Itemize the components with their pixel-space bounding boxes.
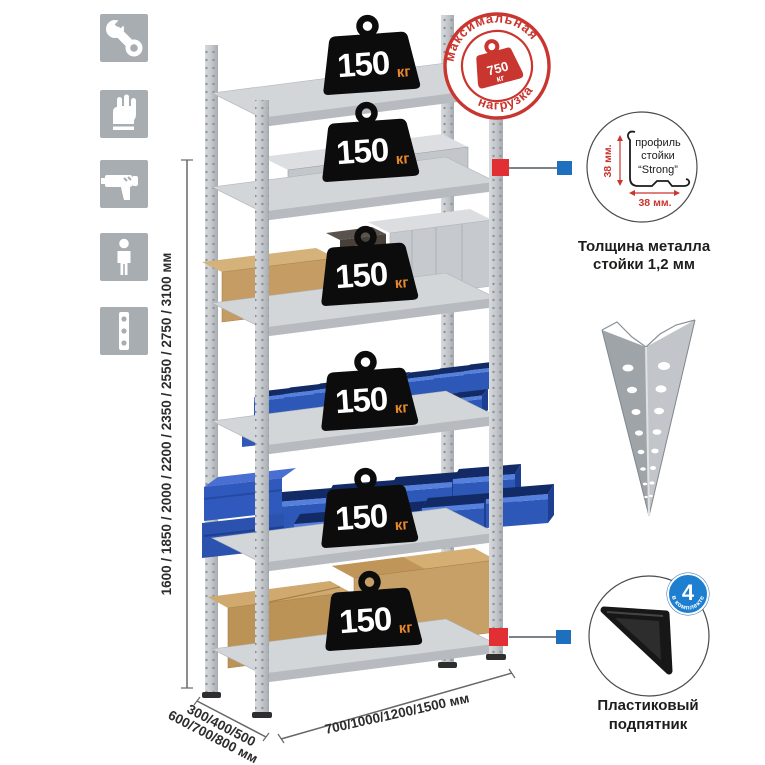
svg-text:кг: кг xyxy=(396,63,411,81)
profile-dim-horizontal: 38 мм. xyxy=(638,197,671,209)
foot-detail: 4 в комплекте xyxy=(589,573,710,697)
svg-text:кг: кг xyxy=(394,399,409,417)
shelf-load-badge-4: 150 кг xyxy=(317,351,419,432)
foot-caption-2: подпятник xyxy=(609,716,688,733)
width-dimension-label: 700/1000/1200/1500 мм xyxy=(323,690,470,737)
svg-text:150: 150 xyxy=(334,380,389,421)
quantity-badge: 4 в комплекте xyxy=(667,573,710,616)
shelf-load-badge-1: 150 кг xyxy=(319,15,421,96)
svg-text:кг: кг xyxy=(395,150,410,168)
shelving-scene: 150 кг 150 кг 150 кг 150 кг 150 кг 150 к… xyxy=(0,0,765,765)
height-dimension: 1600 / 1850 / 2000 / 2200 / 2350 / 2550 … xyxy=(159,160,193,688)
profile-caption-1: Толщина металла xyxy=(578,238,711,255)
depth-dimension: 300/400/500 600/700/800 мм xyxy=(166,695,269,765)
quantity-badge-value: 4 xyxy=(682,580,695,605)
svg-text:150: 150 xyxy=(338,600,393,641)
width-dimension: 700/1000/1200/1500 мм xyxy=(278,669,515,743)
profile-caption-2: стойки 1,2 мм xyxy=(593,256,695,273)
svg-text:150: 150 xyxy=(336,44,391,85)
height-dimension-label: 1600 / 1850 / 2000 / 2200 / 2350 / 2550 … xyxy=(159,253,174,596)
profile-label-1: профиль xyxy=(635,137,681,149)
svg-text:150: 150 xyxy=(334,497,389,538)
profile-label-3: “Strong” xyxy=(638,164,678,176)
profile-callout-connector xyxy=(492,159,572,176)
svg-text:кг: кг xyxy=(398,619,413,637)
foot-caption-1: Пластиковый xyxy=(597,697,698,714)
product-infographic: 150 кг 150 кг 150 кг 150 кг 150 кг 150 к… xyxy=(0,0,765,765)
svg-text:кг: кг xyxy=(394,516,409,534)
foot-callout-connector xyxy=(489,628,571,646)
profile-dim-vertical: 38 мм. xyxy=(602,144,614,177)
profile-detail: 38 мм. 38 мм. профиль стойки “Strong” xyxy=(587,112,697,222)
svg-text:кг: кг xyxy=(394,274,409,292)
angle-post-image xyxy=(602,320,695,516)
svg-text:150: 150 xyxy=(334,255,389,296)
profile-label-2: стойки xyxy=(641,150,675,162)
svg-text:150: 150 xyxy=(335,131,390,172)
